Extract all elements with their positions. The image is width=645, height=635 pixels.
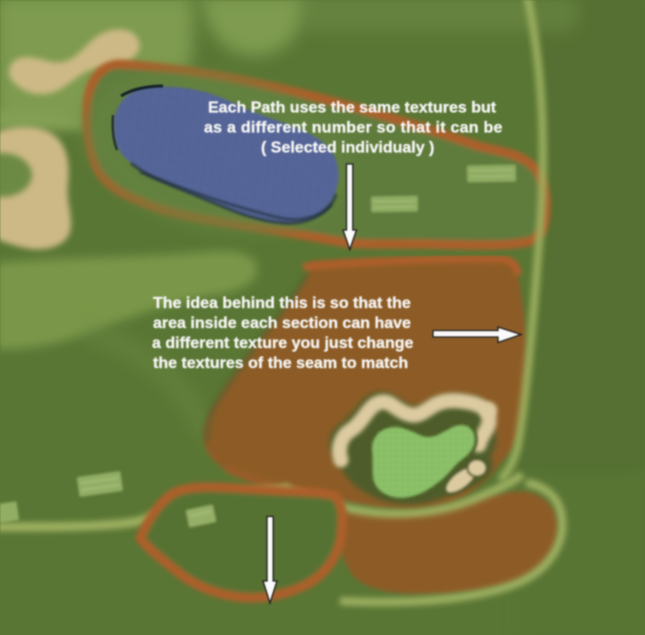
svg-text:as a different number so that: as a different number so that it can be xyxy=(204,120,503,137)
svg-text:the textures of the seam to ma: the textures of the seam to match xyxy=(153,355,408,372)
svg-text:The idea behind this is so tha: The idea behind this is so that the xyxy=(153,295,411,312)
svg-text:area inside each section can h: area inside each section can have xyxy=(153,315,411,332)
svg-text:( Selected individualy ): ( Selected individualy ) xyxy=(261,140,434,157)
svg-text:Each Path uses the same textur: Each Path uses the same textures but xyxy=(208,100,497,117)
svg-text:a different texture you just c: a different texture you just change xyxy=(152,335,413,352)
